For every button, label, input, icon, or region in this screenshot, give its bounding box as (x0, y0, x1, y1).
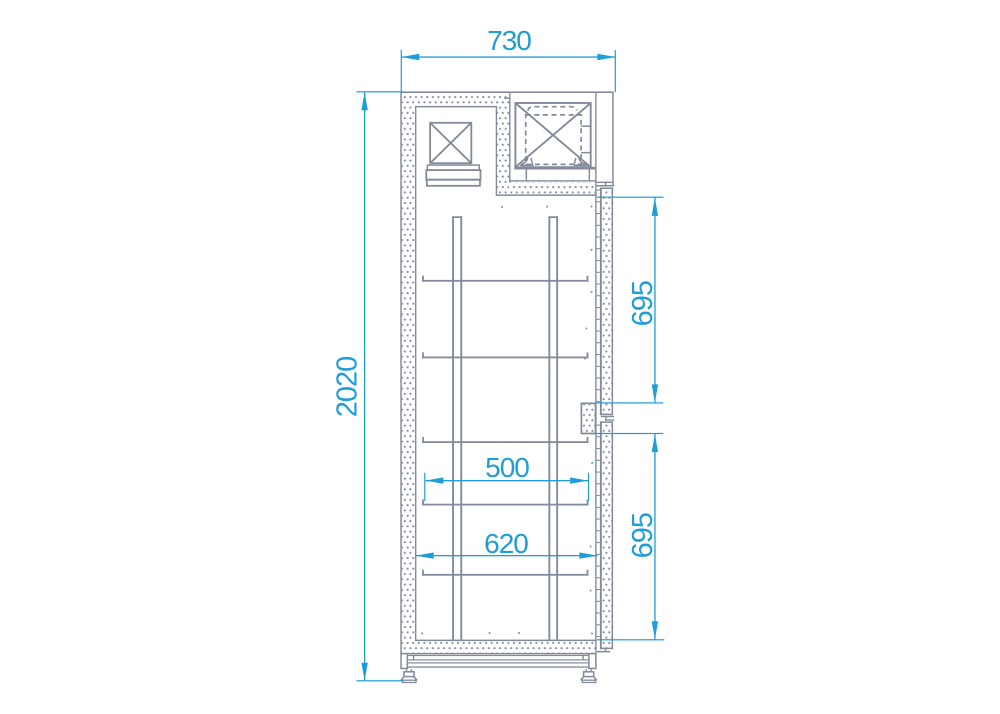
svg-text:695: 695 (627, 513, 659, 558)
svg-text:2020: 2020 (332, 357, 364, 418)
svg-text:695: 695 (627, 281, 659, 326)
svg-text:730: 730 (487, 25, 531, 56)
svg-text:500: 500 (485, 452, 529, 483)
svg-text:620: 620 (484, 528, 528, 559)
